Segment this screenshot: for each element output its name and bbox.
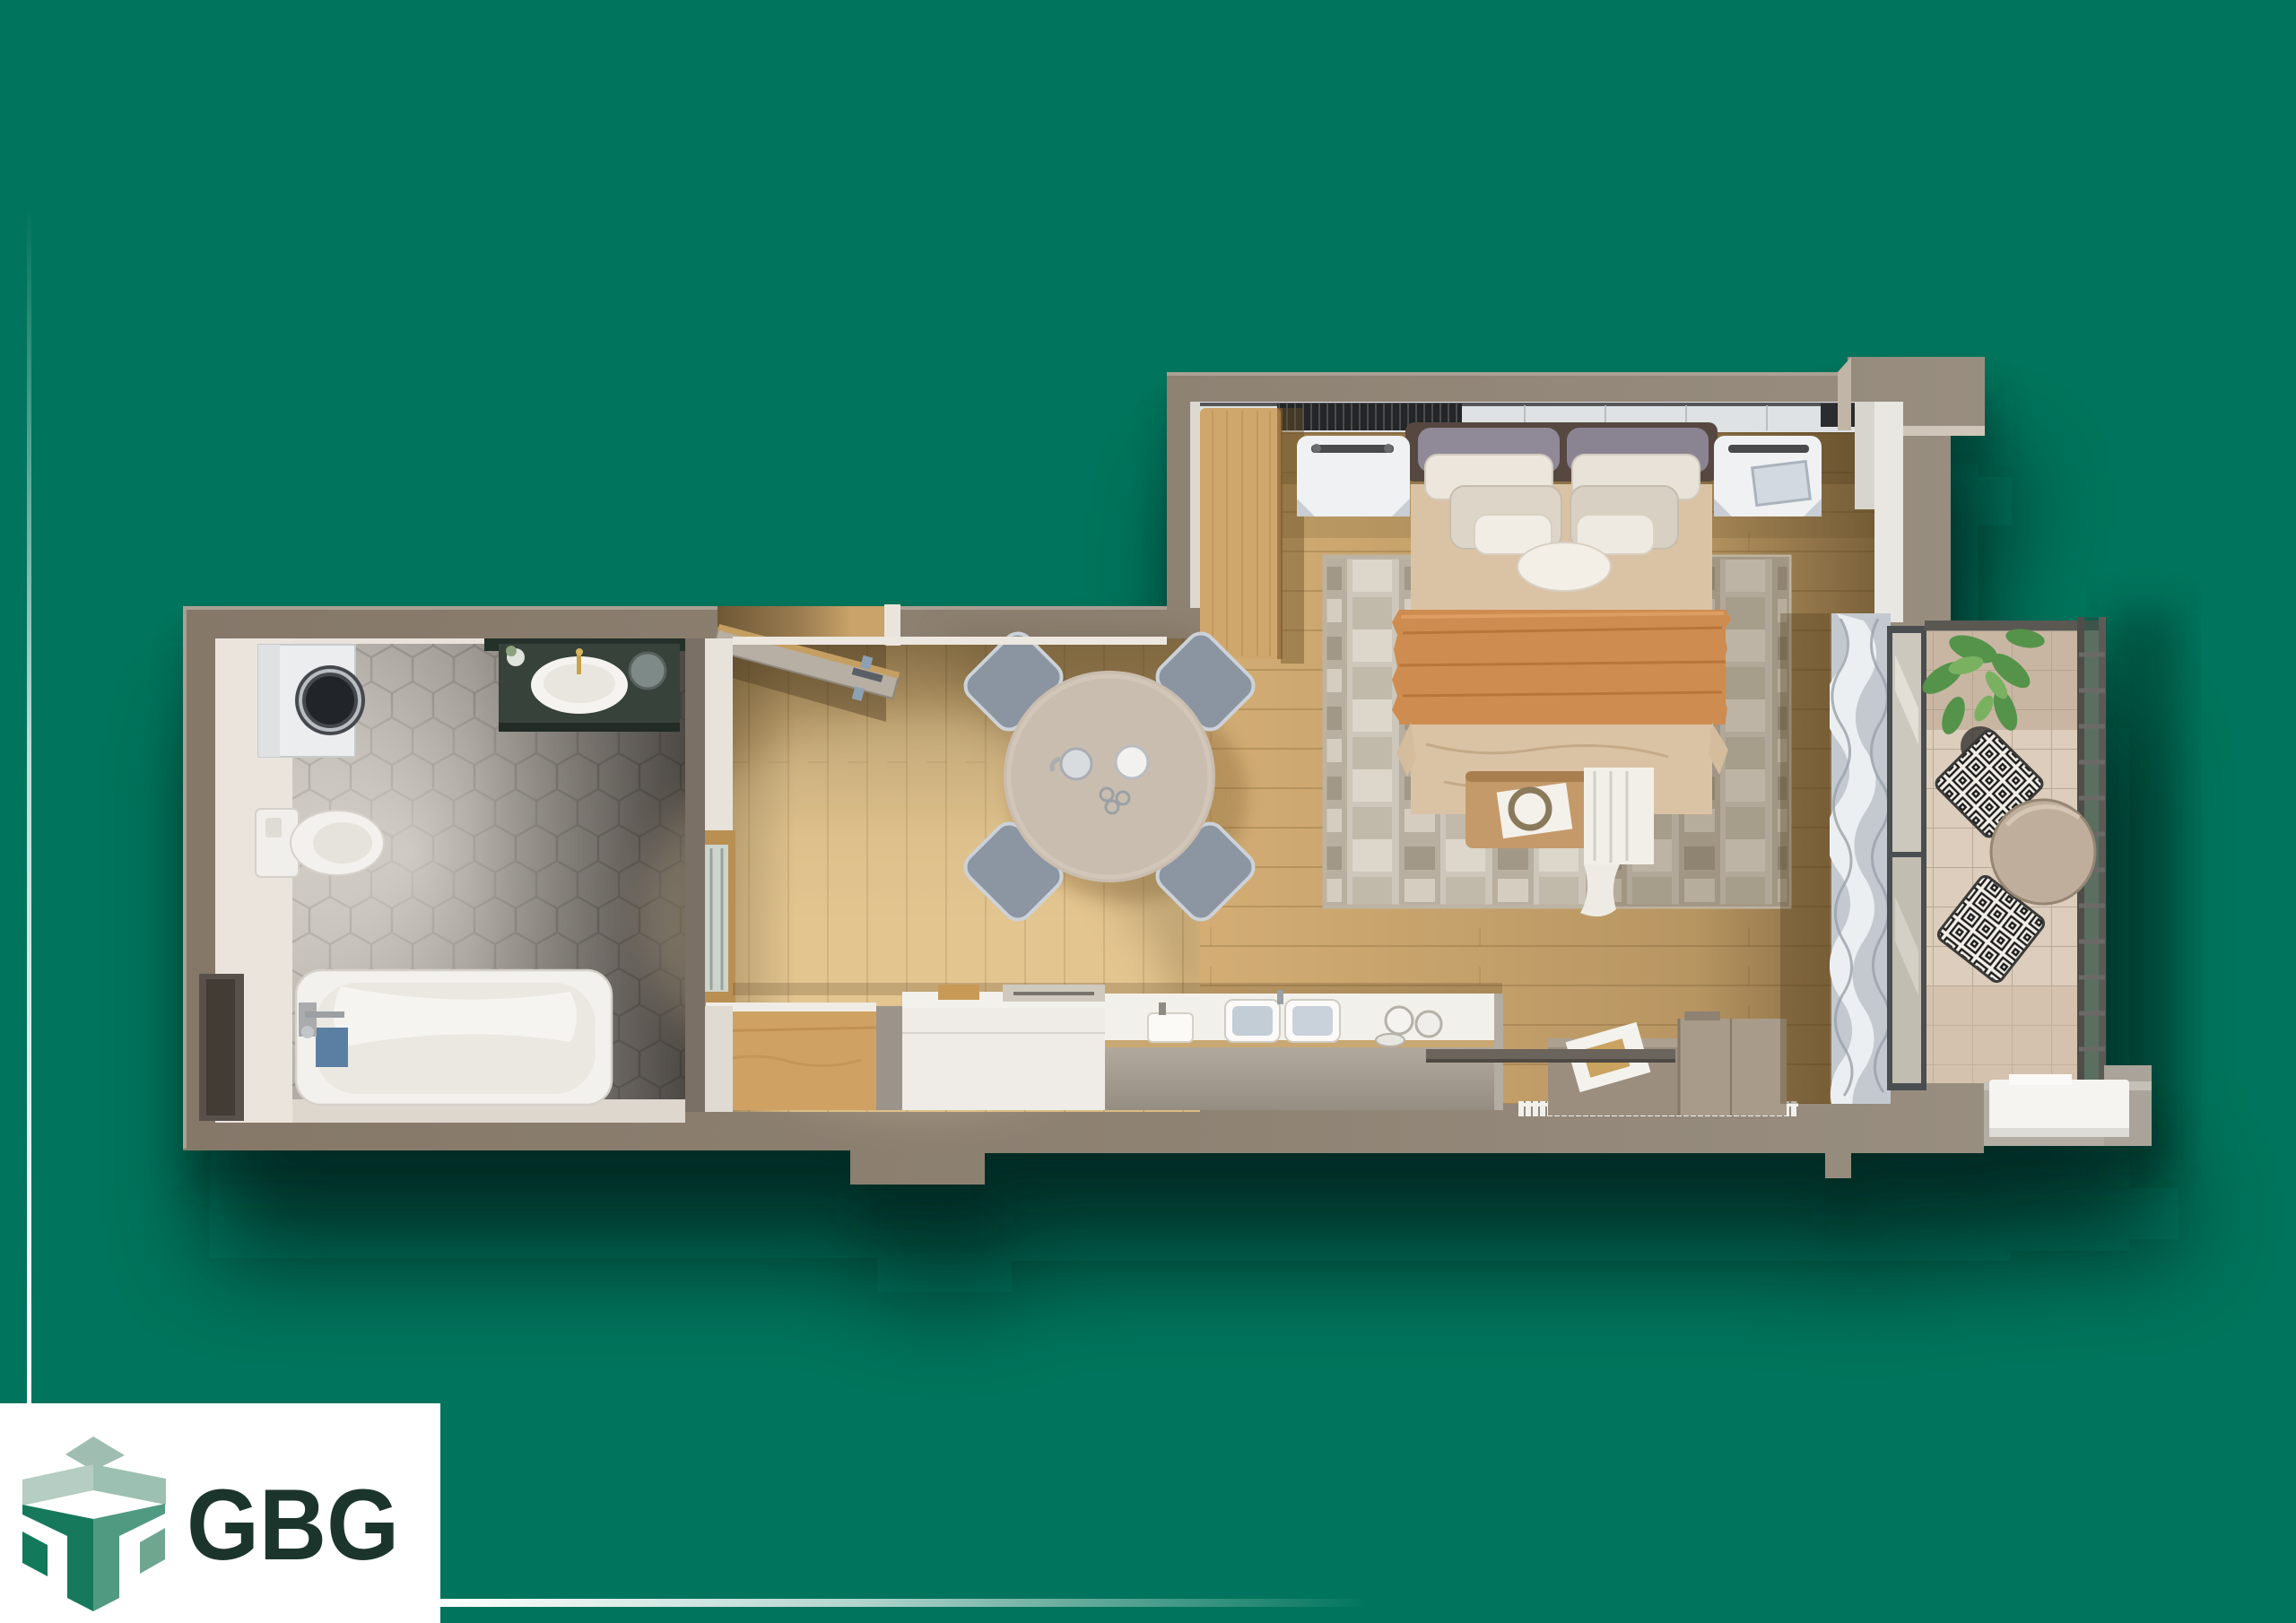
svg-text:GBG: GBG xyxy=(187,1469,399,1581)
